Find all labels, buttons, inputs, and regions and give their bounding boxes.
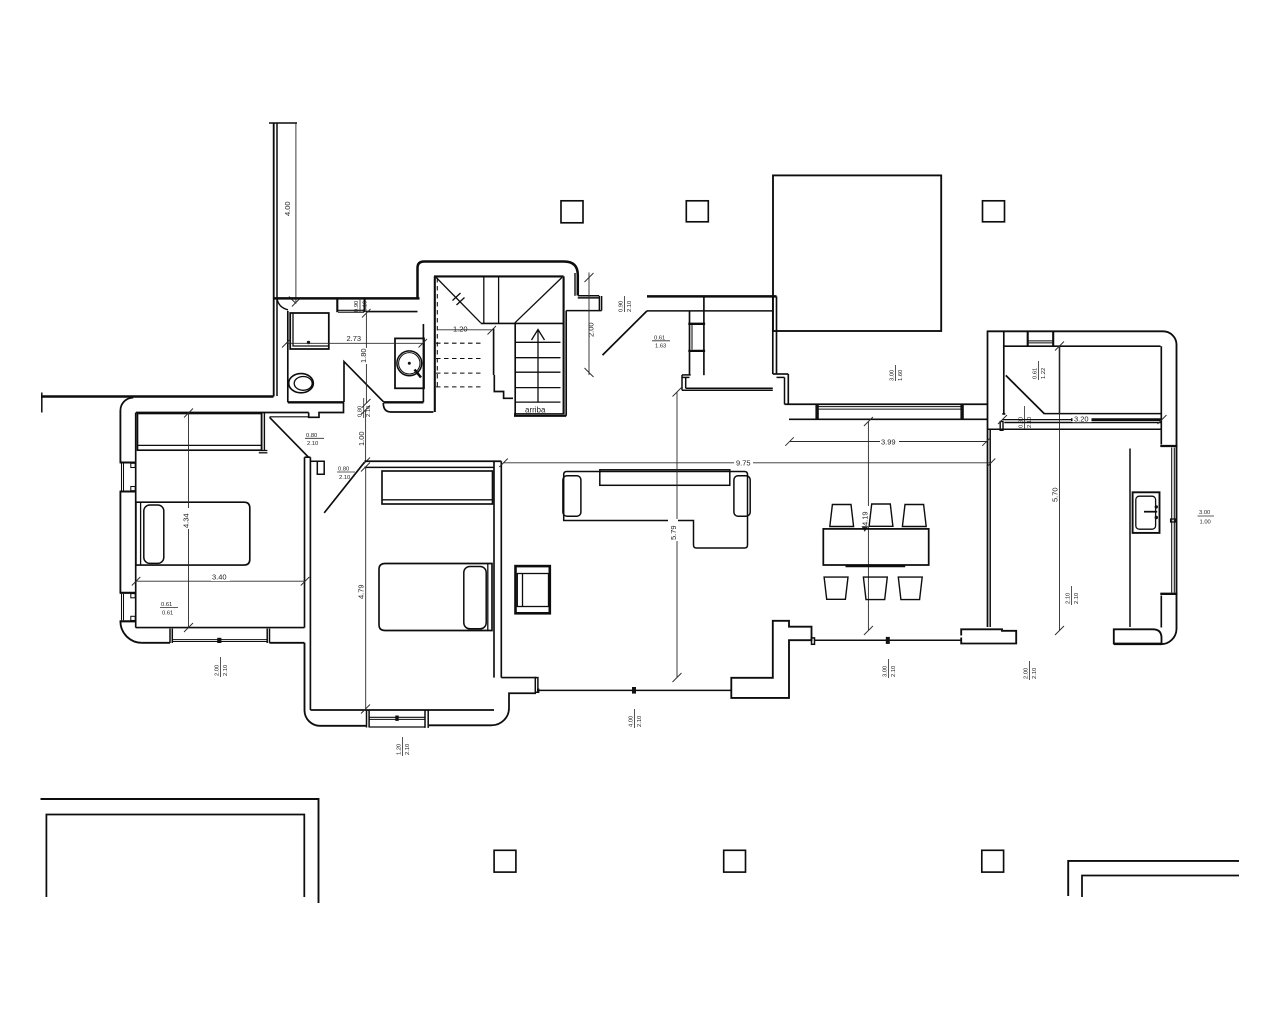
svg-text:0.80: 0.80 — [358, 406, 364, 417]
svg-text:2.10: 2.10 — [339, 475, 350, 481]
svg-text:4.34: 4.34 — [182, 513, 191, 528]
svg-text:0.90: 0.90 — [354, 301, 360, 312]
svg-text:1.00: 1.00 — [1200, 520, 1211, 526]
svg-text:1.80: 1.80 — [359, 348, 368, 363]
svg-text:5.79: 5.79 — [669, 525, 678, 540]
svg-text:1.63: 1.63 — [655, 343, 666, 349]
svg-text:2.10: 2.10 — [637, 716, 643, 727]
svg-text:2.00: 2.00 — [1024, 668, 1030, 679]
svg-text:1.20: 1.20 — [397, 744, 403, 755]
svg-text:2.10: 2.10 — [627, 301, 633, 312]
svg-text:2.10: 2.10 — [1032, 668, 1038, 679]
svg-text:arriba: arriba — [525, 406, 546, 415]
svg-text:2.10: 2.10 — [366, 406, 372, 417]
svg-text:4.79: 4.79 — [357, 584, 366, 599]
svg-text:3.99: 3.99 — [881, 437, 896, 446]
svg-text:0.90: 0.90 — [619, 301, 625, 312]
svg-text:5.70: 5.70 — [1051, 487, 1060, 502]
svg-text:2.00: 2.00 — [215, 665, 221, 676]
svg-text:2.00: 2.00 — [587, 322, 596, 337]
svg-text:3.40: 3.40 — [212, 573, 227, 582]
svg-text:4.00: 4.00 — [283, 201, 292, 216]
svg-text:2.10: 2.10 — [223, 665, 229, 676]
svg-text:1.22: 1.22 — [1041, 368, 1047, 379]
svg-text:3.00: 3.00 — [890, 370, 896, 381]
svg-text:0.61: 0.61 — [162, 611, 173, 617]
svg-text:2.10: 2.10 — [363, 301, 369, 312]
svg-text:2.10: 2.10 — [405, 744, 411, 755]
svg-text:2.10: 2.10 — [1074, 593, 1080, 604]
svg-text:2.10: 2.10 — [891, 666, 897, 677]
svg-text:3.20: 3.20 — [1074, 414, 1089, 423]
svg-text:4.19: 4.19 — [861, 511, 870, 526]
svg-text:3.00: 3.00 — [883, 666, 889, 677]
svg-text:1.60: 1.60 — [898, 370, 904, 381]
svg-text:1.20: 1.20 — [453, 325, 468, 334]
svg-text:2.10: 2.10 — [307, 441, 318, 447]
svg-text:2.10: 2.10 — [1066, 593, 1072, 604]
svg-text:0.61: 0.61 — [1033, 368, 1039, 379]
svg-text:0.80: 0.80 — [1019, 417, 1025, 428]
svg-text:2.10: 2.10 — [1027, 417, 1033, 428]
svg-text:9.75: 9.75 — [736, 459, 751, 468]
svg-text:3.00: 3.00 — [1199, 510, 1210, 516]
svg-text:4.00: 4.00 — [629, 716, 635, 727]
svg-text:2.73: 2.73 — [347, 334, 362, 343]
svg-text:1.00: 1.00 — [357, 431, 366, 446]
